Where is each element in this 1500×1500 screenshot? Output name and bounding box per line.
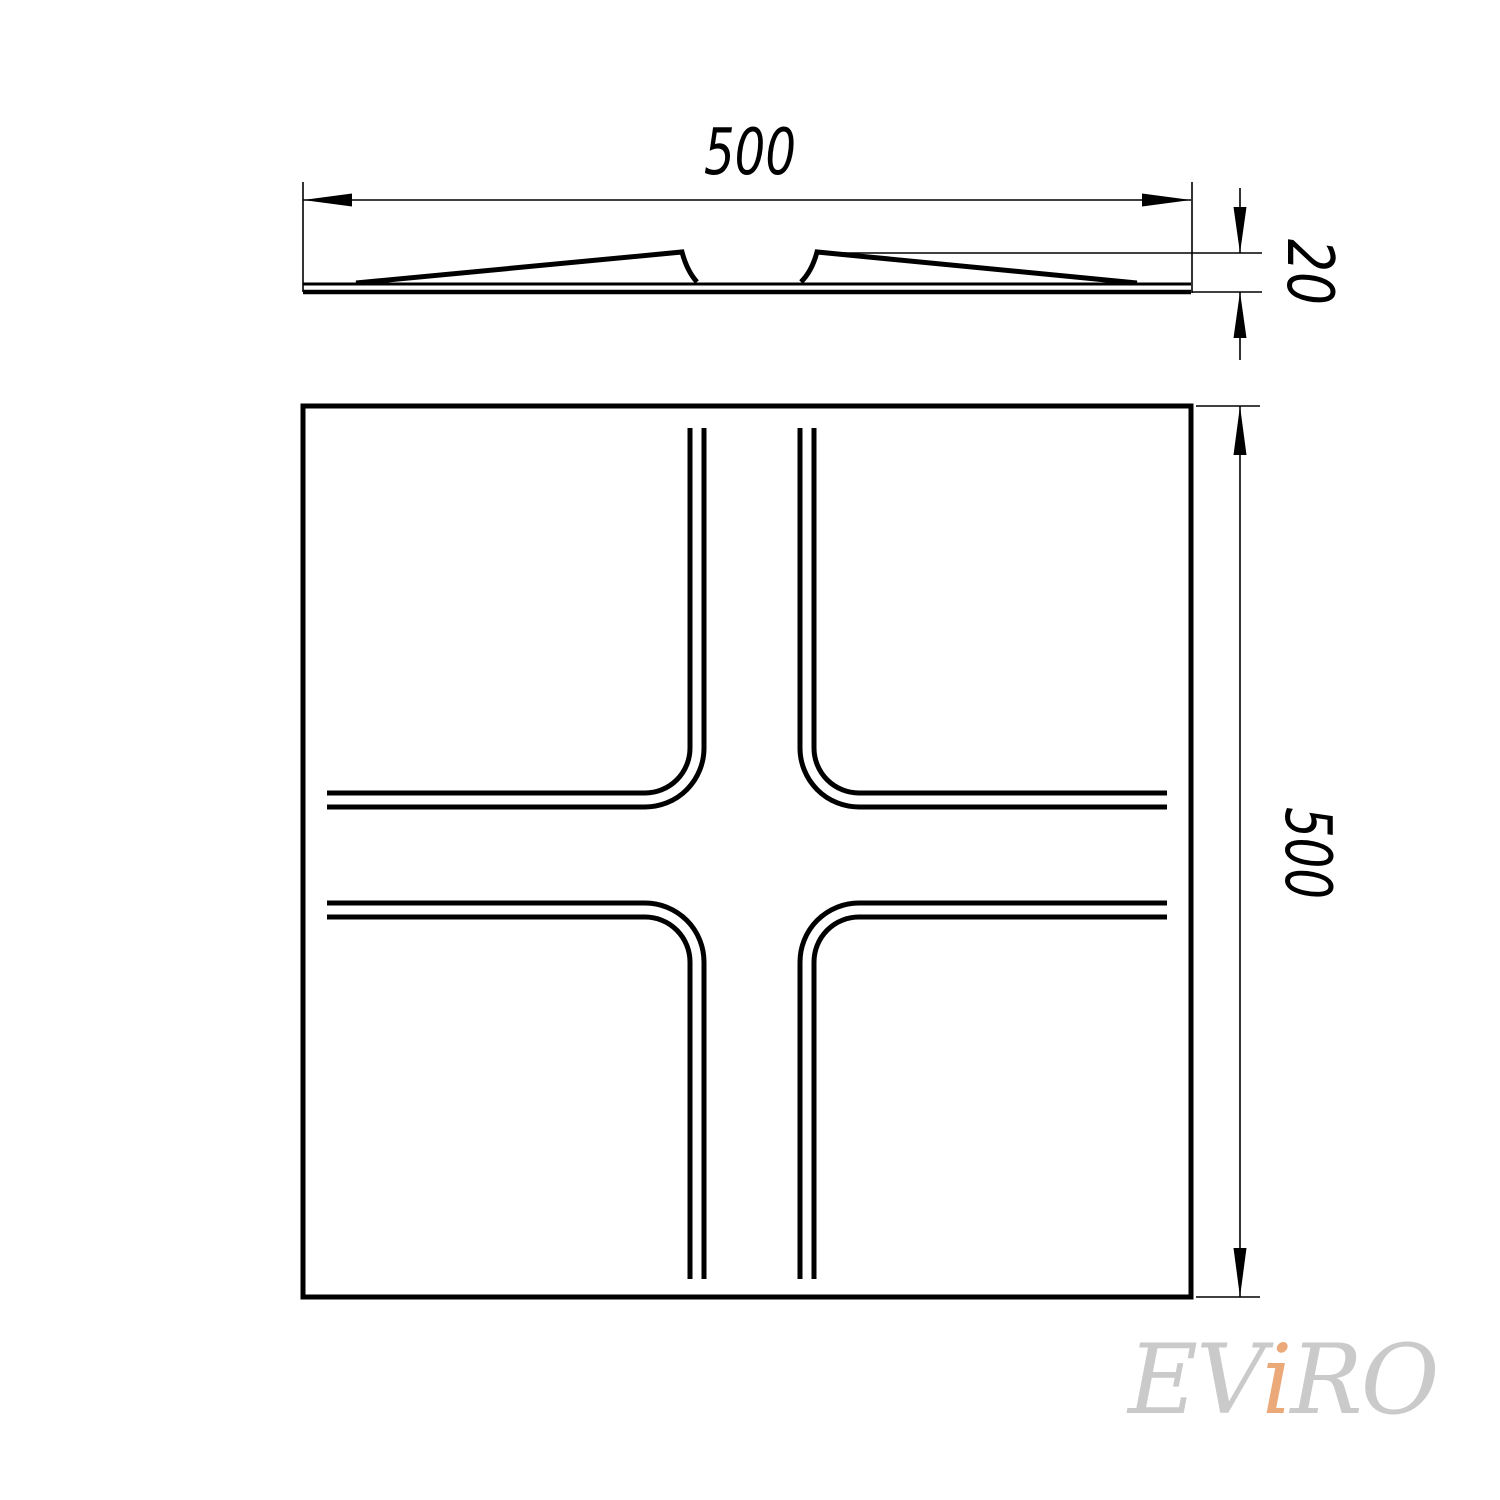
thickness-dimension-text: 20 (1272, 239, 1346, 305)
height-arrow-down-icon (1234, 1248, 1247, 1297)
width-arrow-left-icon (303, 194, 352, 207)
brand-watermark: EViRO (1128, 1332, 1488, 1428)
side-profile-view (303, 252, 1191, 292)
groove-top-left-inner (327, 428, 690, 793)
profile-right-ramp (801, 252, 1137, 283)
watermark-text-i: i (1262, 1324, 1291, 1436)
groove-bottom-left-inner (327, 917, 690, 1279)
watermark-text-ev: EV (1128, 1324, 1262, 1436)
thickness-dimension: 20 (819, 188, 1346, 360)
groove-bottom-right-outer (800, 903, 1167, 1279)
front-view (303, 406, 1191, 1297)
technical-drawing: 500 20 (0, 0, 1500, 1500)
profile-left-ramp (356, 252, 697, 283)
groove-top-left-outer (327, 428, 704, 807)
thickness-arrow-up-icon (1234, 292, 1247, 338)
height-arrow-up-icon (1234, 406, 1247, 455)
groove-top-right-inner (814, 428, 1167, 793)
groove-bottom-left-outer (327, 903, 704, 1279)
width-arrow-right-icon (1142, 194, 1191, 207)
drawing-canvas: 500 20 (0, 0, 1500, 1500)
width-dimension-text: 500 (704, 116, 796, 190)
watermark-text-ro: RO (1290, 1324, 1437, 1436)
groove-bottom-right-inner (814, 917, 1167, 1279)
width-dimension: 500 (303, 116, 1192, 293)
thickness-arrow-down-icon (1234, 207, 1247, 253)
panel-outline (303, 406, 1191, 1297)
height-dimension-text: 500 (1270, 807, 1344, 899)
height-dimension: 500 (1196, 406, 1344, 1297)
groove-top-right-outer (800, 428, 1167, 807)
